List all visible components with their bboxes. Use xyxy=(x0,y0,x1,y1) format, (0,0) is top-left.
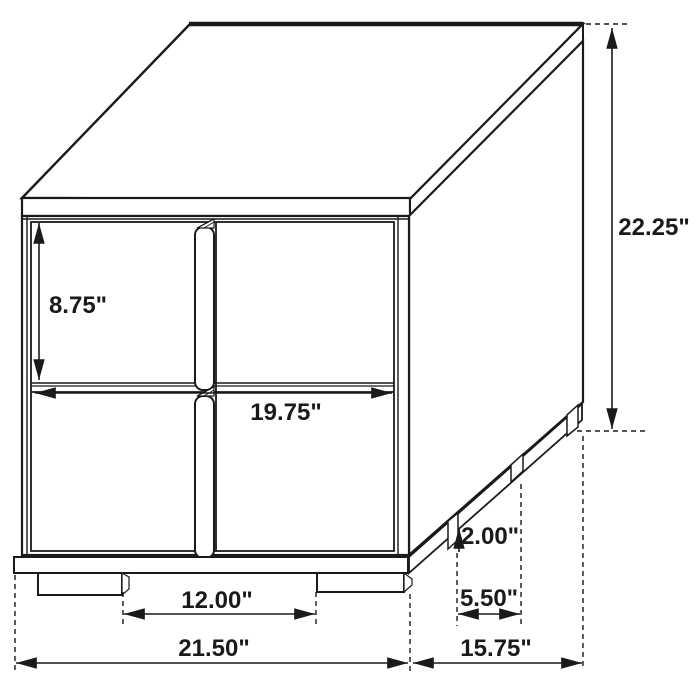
front-right-foot xyxy=(317,573,404,592)
top-front-edge-face xyxy=(22,198,410,216)
dim-front-foot-label: 12.00" xyxy=(181,587,252,614)
dim-drawer-width-label: 19.75" xyxy=(250,399,321,426)
lower-drawer-handle xyxy=(195,396,214,558)
dim-upper-drawer-label: 8.75" xyxy=(49,292,107,319)
dim-foot-height: 2.00" xyxy=(459,523,519,552)
dimension-diagram: 22.25" 8.75" 19.75" 2.00" 5.50" 12.00" 2… xyxy=(0,0,700,700)
dim-height-label: 22.25" xyxy=(618,214,689,241)
base-front-rail xyxy=(14,557,408,573)
front-left-foot xyxy=(38,573,122,595)
upper-drawer-handle xyxy=(195,227,214,390)
dim-width-label: 21.50" xyxy=(178,635,249,662)
dim-side-foot-label: 5.50" xyxy=(460,585,518,612)
front-face xyxy=(22,216,409,558)
dim-depth-label: 15.75" xyxy=(460,635,531,662)
dim-foot-height-label: 2.00" xyxy=(461,523,519,550)
